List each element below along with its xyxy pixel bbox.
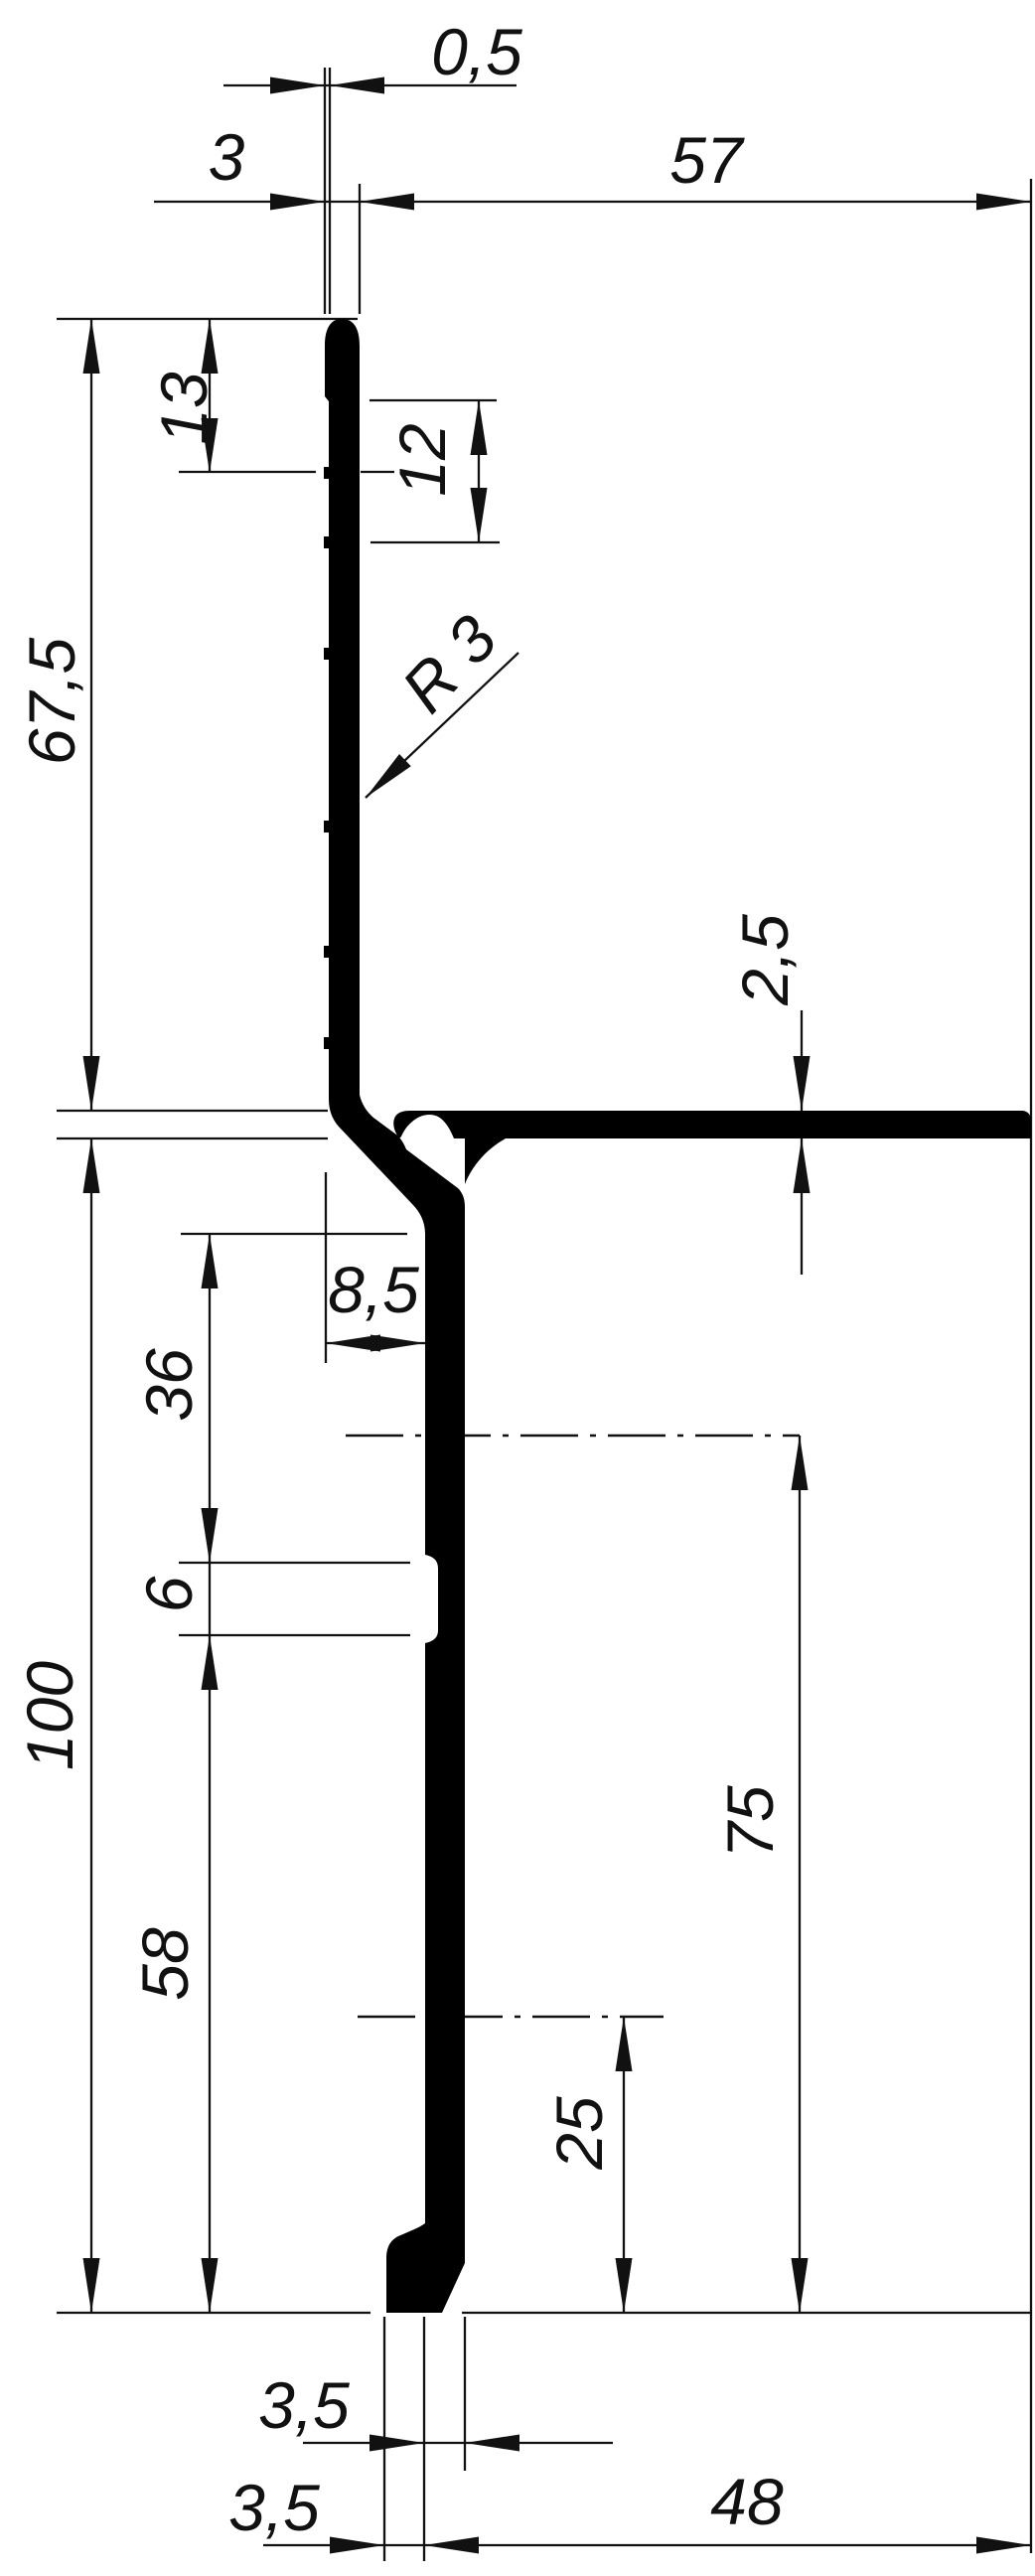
arrowhead-icon (202, 1508, 219, 1563)
dim-label-100: 100 (13, 1661, 86, 1770)
arrowhead-icon (360, 194, 414, 211)
arrowhead-icon (202, 1234, 219, 1288)
technical-drawing-svg: 0,5 3 57 13 12 R 3 67,5 2,5 8,5 36 6 100… (0, 0, 1035, 2576)
arrowhead-icon (370, 1335, 425, 1352)
dim-label-8-5: 8,5 (328, 1253, 419, 1326)
arrowhead-icon (616, 2258, 633, 2313)
dim-label-13: 13 (147, 372, 221, 445)
dim-label-2-5: 2,5 (728, 914, 802, 1006)
arrowhead-icon (370, 2435, 424, 2452)
arrowhead-icon (202, 319, 219, 374)
dim-label-3-5-lower: 3,5 (228, 2471, 320, 2544)
arrowhead-icon (792, 2258, 809, 2313)
dim-label-36: 36 (132, 1348, 206, 1422)
dim-label-75: 75 (713, 1785, 787, 1859)
arrowhead-icon (976, 2537, 1031, 2554)
arrowhead-icon (83, 1056, 100, 1111)
profile-fillet-path (465, 1138, 506, 1184)
dim-label-3: 3 (209, 120, 245, 194)
profile-shape (324, 319, 1031, 2313)
dim-label-58: 58 (128, 1927, 202, 2001)
dim-label-12: 12 (385, 423, 459, 496)
arrowhead-icon (616, 2017, 633, 2071)
dim-label-3-5-upper: 3,5 (258, 2368, 350, 2442)
arrowhead-icon (794, 1138, 811, 1193)
dim-label-6: 6 (132, 1576, 206, 1612)
arrowhead-icon (792, 1436, 809, 1490)
arrowhead-icon (202, 1635, 219, 1690)
dim-label-48: 48 (710, 2465, 784, 2538)
arrowhead-icon (465, 2435, 519, 2452)
arrowhead-icon (471, 400, 488, 455)
dimension-labels: 0,5 3 57 13 12 R 3 67,5 2,5 8,5 36 6 100… (13, 15, 802, 2544)
arrowhead-icon (471, 488, 488, 542)
arrowhead-icon (202, 2258, 219, 2313)
arrowhead-icon (794, 1056, 811, 1111)
dimension-arrowheads (83, 77, 1032, 2554)
arrowhead-icon (270, 194, 325, 211)
arrowhead-icon (330, 2537, 384, 2554)
drawing-page: 0,5 3 57 13 12 R 3 67,5 2,5 8,5 36 6 100… (0, 0, 1035, 2576)
dim-label-57: 57 (669, 123, 745, 197)
dim-label-25: 25 (542, 2096, 616, 2171)
arrowhead-icon (83, 2258, 100, 2313)
dim-label-67-5: 67,5 (15, 637, 88, 765)
arrowhead-icon (270, 77, 325, 94)
dim-label-0-5: 0,5 (431, 15, 522, 88)
arrowhead-icon (976, 194, 1031, 211)
arrowhead-icon (83, 319, 100, 374)
dim-label-r3: R 3 (387, 601, 511, 726)
arrowhead-icon (330, 77, 384, 94)
arrowhead-icon (360, 754, 411, 804)
arrowhead-icon (83, 1138, 100, 1193)
profile-flange-path (393, 1111, 1031, 1138)
arrowhead-icon (424, 2537, 479, 2554)
